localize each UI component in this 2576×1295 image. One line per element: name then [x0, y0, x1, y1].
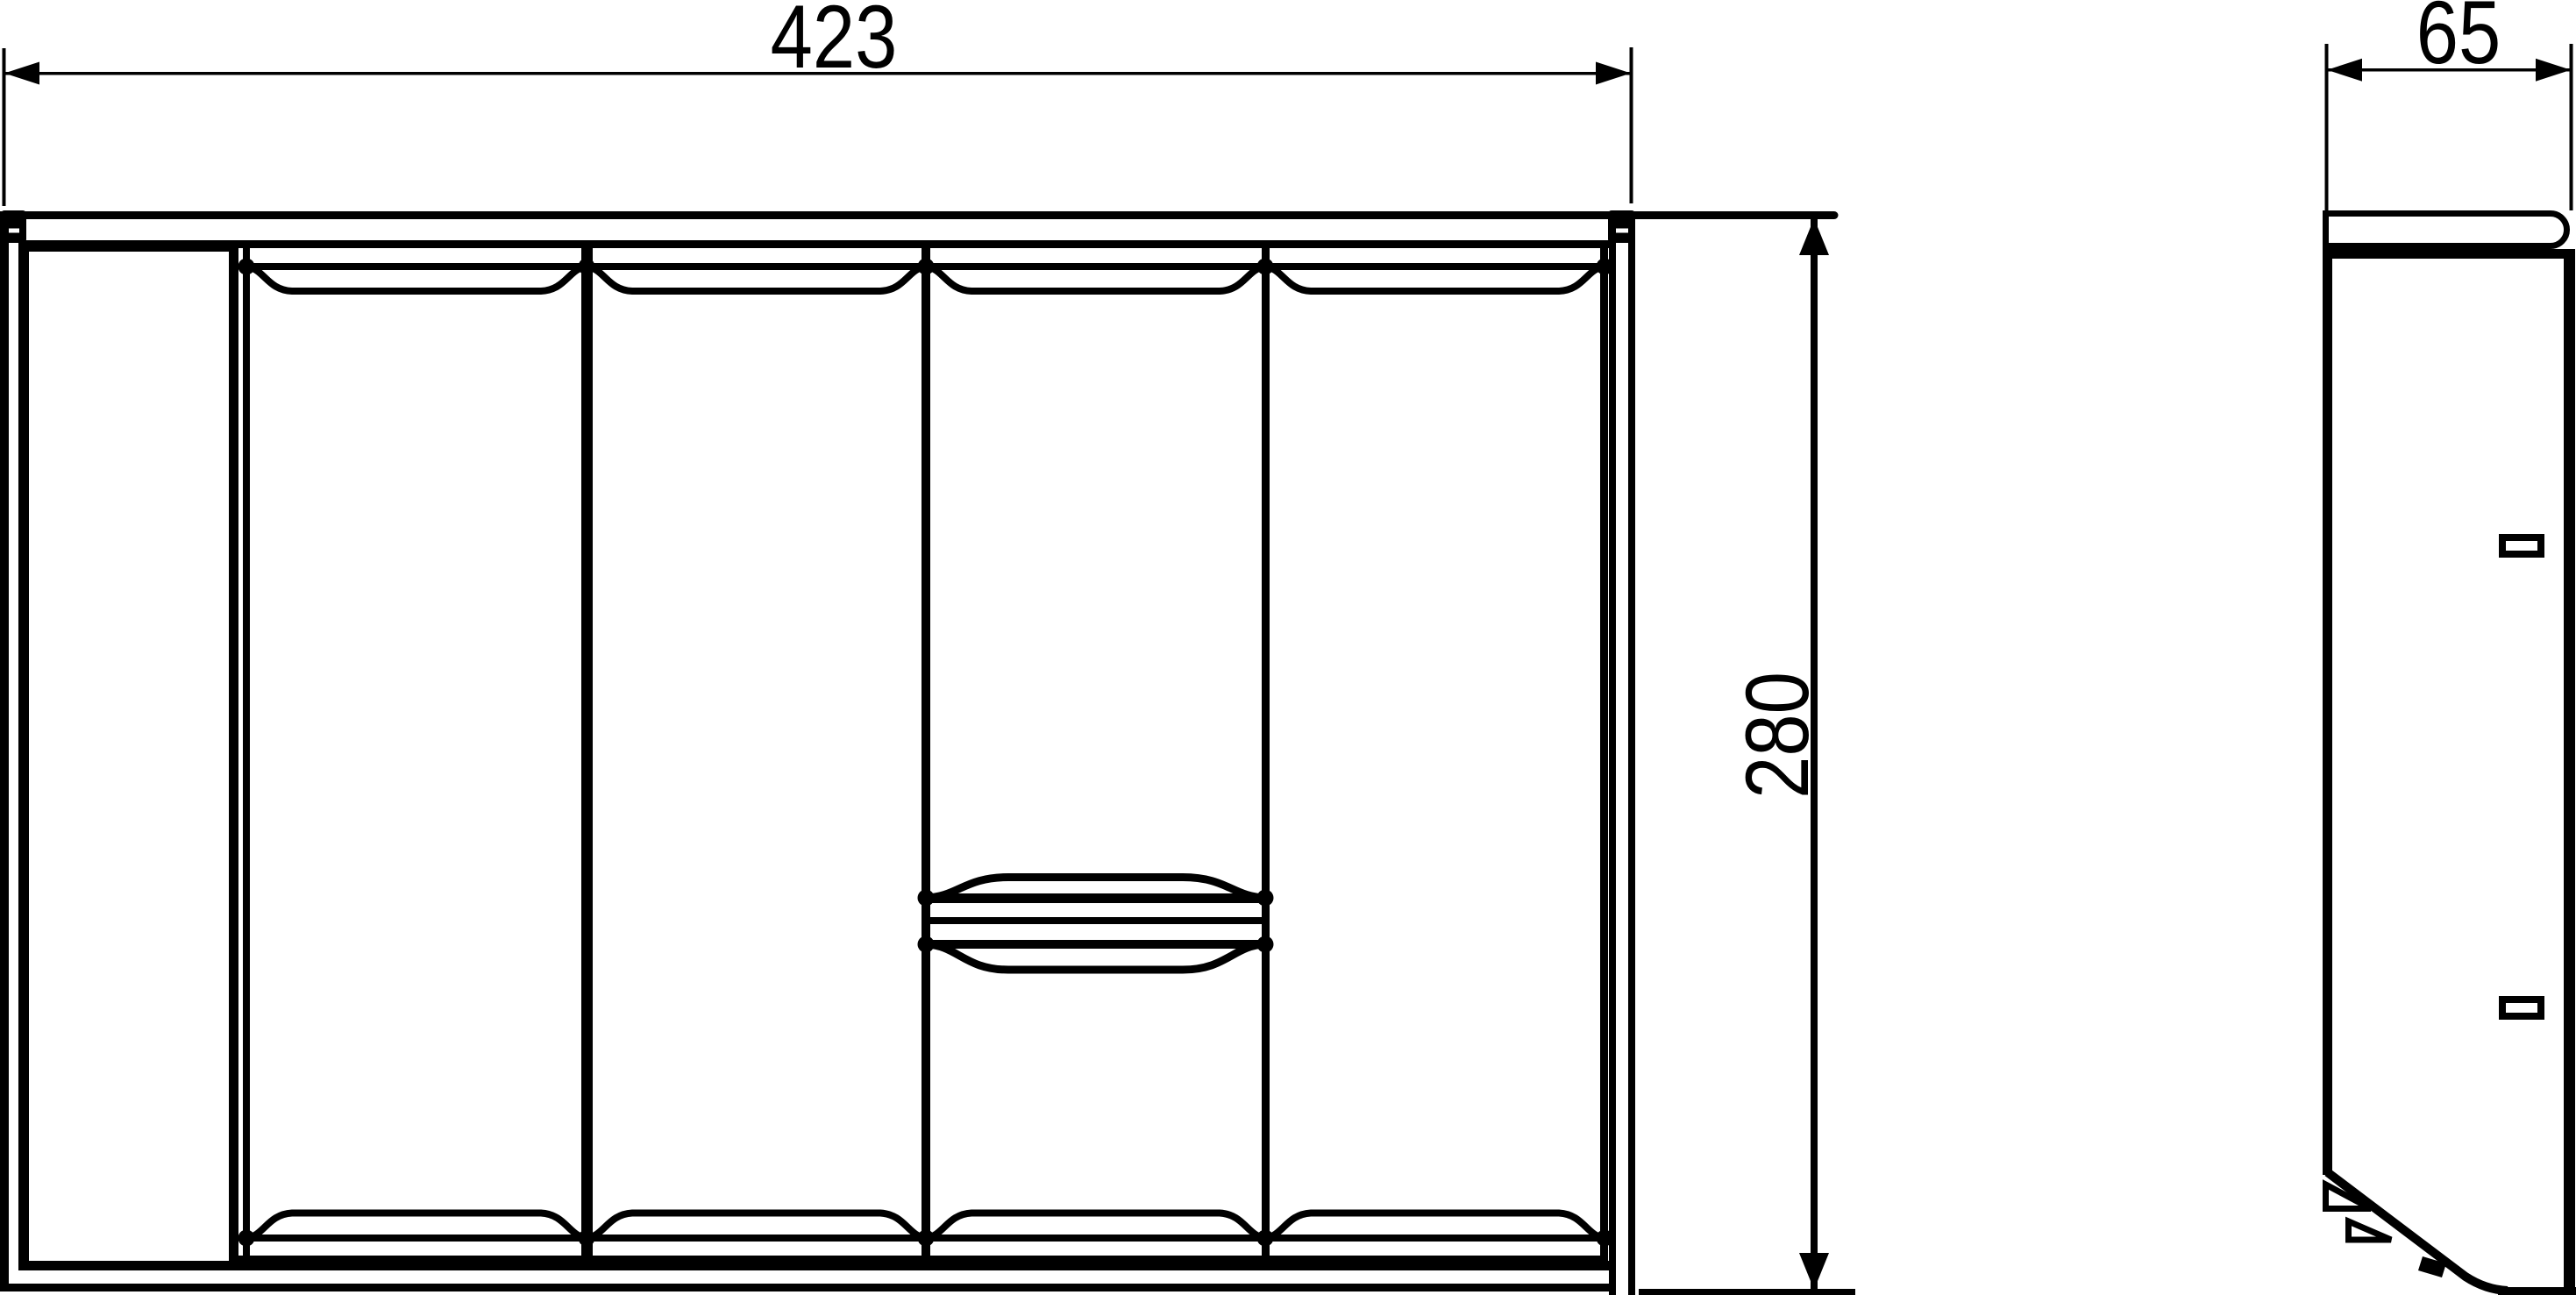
svg-text:423: 423 — [771, 0, 898, 88]
svg-text:65: 65 — [2416, 0, 2501, 83]
svg-text:280: 280 — [1727, 672, 1827, 799]
